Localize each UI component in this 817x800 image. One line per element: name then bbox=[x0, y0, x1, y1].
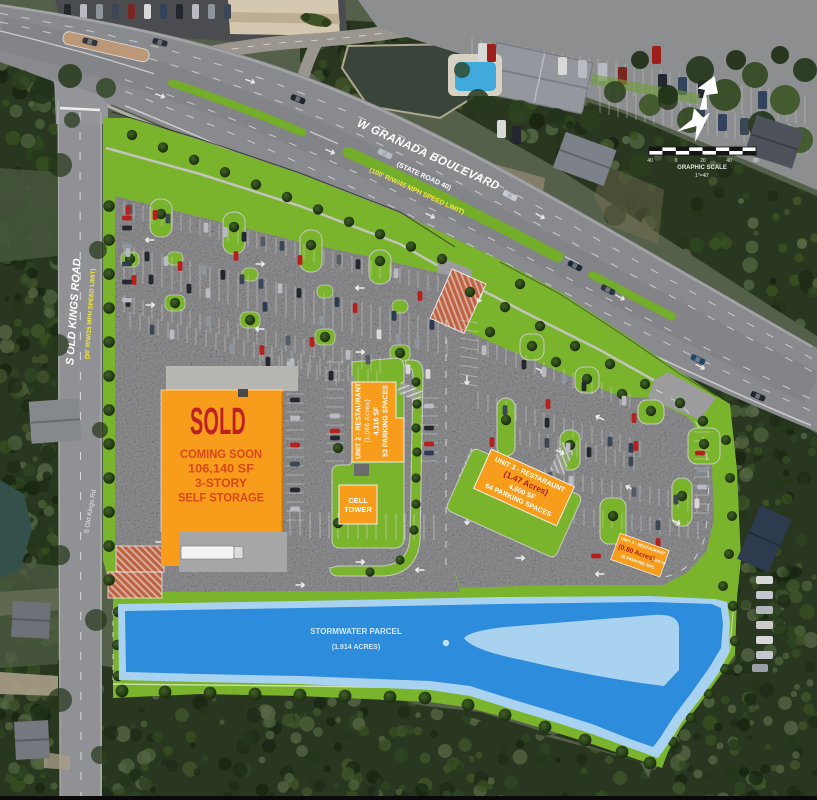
svg-text:(1.066 Acres): (1.066 Acres) bbox=[365, 399, 372, 442]
svg-text:0: 0 bbox=[675, 158, 678, 164]
svg-text:4,316 SF: 4,316 SF bbox=[374, 406, 381, 435]
svg-text:3-STORY: 3-STORY bbox=[195, 476, 247, 490]
svg-text:20: 20 bbox=[700, 158, 706, 164]
svg-text:STORMWATER PARCEL: STORMWATER PARCEL bbox=[310, 627, 402, 636]
svg-text:CELL: CELL bbox=[348, 496, 368, 505]
svg-text:106,140 SF: 106,140 SF bbox=[188, 462, 254, 476]
svg-text:UNIT 2 - RESTAURANT: UNIT 2 - RESTAURANT bbox=[356, 382, 363, 459]
svg-text:53 PARKING SPACES: 53 PARKING SPACES bbox=[383, 385, 390, 457]
svg-text:(1.914 ACRES): (1.914 ACRES) bbox=[332, 644, 380, 651]
svg-text:SOLD: SOLD bbox=[190, 401, 246, 442]
svg-text:TOWER: TOWER bbox=[344, 505, 372, 514]
svg-text:SELF STORAGE: SELF STORAGE bbox=[178, 491, 264, 505]
svg-text:COMING SOON: COMING SOON bbox=[180, 447, 262, 461]
svg-text:40: 40 bbox=[647, 158, 653, 164]
svg-text:80: 80 bbox=[753, 158, 759, 164]
svg-text:1"=40': 1"=40' bbox=[695, 173, 709, 179]
svg-text:GRAPHIC SCALE: GRAPHIC SCALE bbox=[677, 165, 727, 171]
svg-text:40: 40 bbox=[726, 158, 732, 164]
